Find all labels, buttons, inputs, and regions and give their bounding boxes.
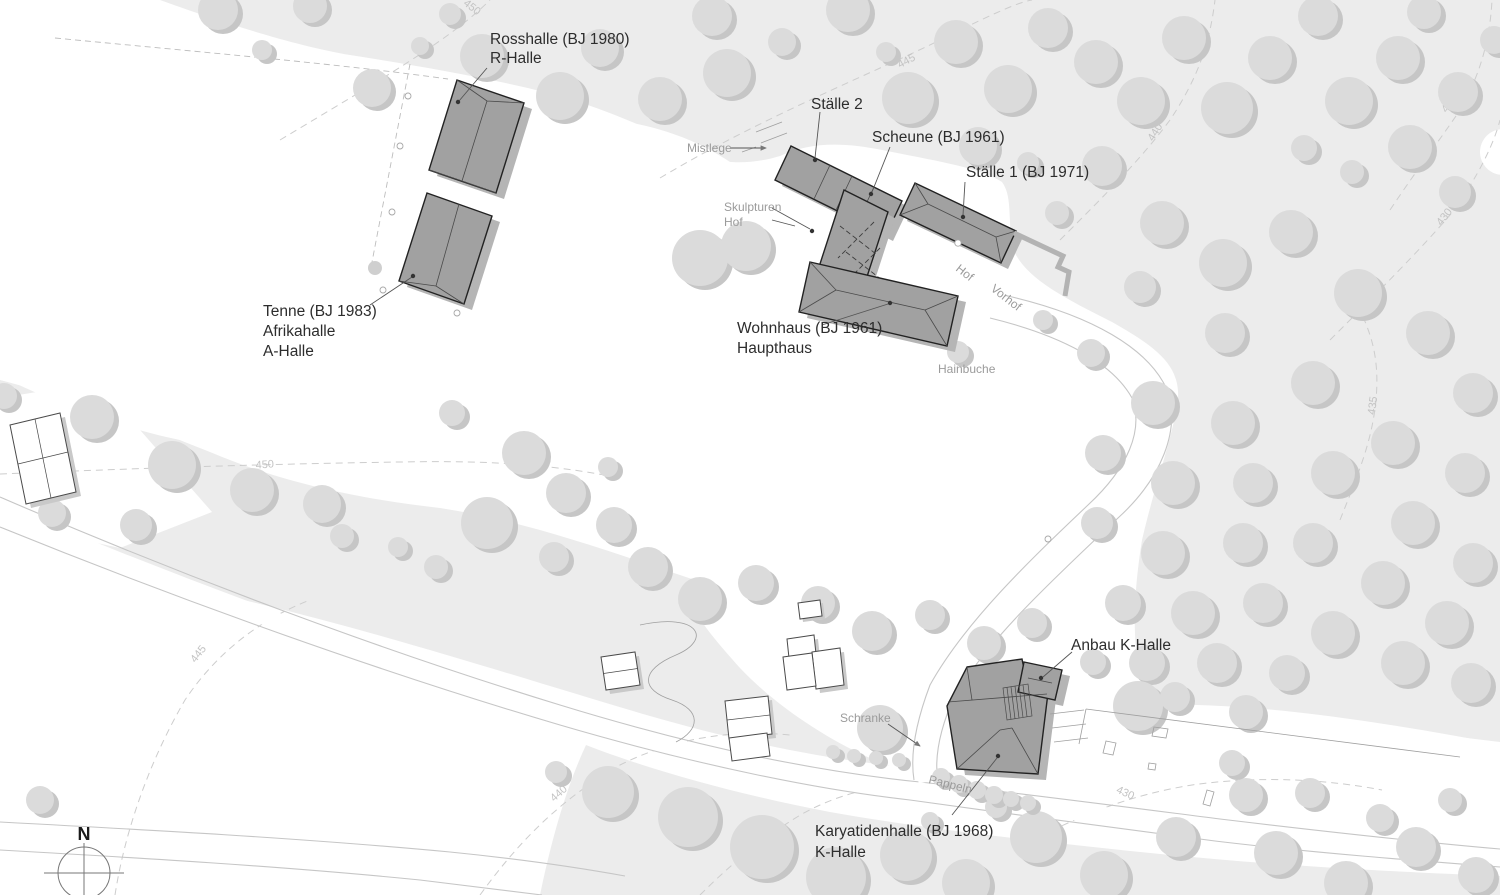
label-karyatidenhalle-line1: Karyatidenhalle (BJ 1968) xyxy=(815,823,993,840)
contour-label-435-right: 435 xyxy=(1366,396,1380,416)
label-staelle2: Ställe 2 xyxy=(811,96,863,113)
label-rosshalle-line1: Rosshalle (BJ 1980) xyxy=(490,31,630,48)
label-wohnhaus-line2: Haupthaus xyxy=(737,340,812,357)
label-karyatidenhalle-line2: K-Halle xyxy=(815,844,866,861)
small-tree-dot xyxy=(368,261,382,275)
site-plan-svg: 450 445 440 425 430 435 450 445 440 435 … xyxy=(0,0,1500,895)
label-mistlege: Mistlege xyxy=(687,141,732,155)
outbuilding-hut xyxy=(601,652,644,694)
outbuilding-tiny xyxy=(798,600,825,622)
label-scheune: Scheune (BJ 1961) xyxy=(872,129,1005,146)
site-plan: 450 445 440 425 430 435 450 445 440 435 … xyxy=(0,0,1500,895)
label-tenne-line2: Afrikahalle xyxy=(263,323,335,340)
label-schranke: Schranke xyxy=(840,711,891,725)
label-staelle1: Ställe 1 (BJ 1971) xyxy=(966,164,1089,181)
label-wohnhaus-line1: Wohnhaus (BJ 1961) xyxy=(737,320,882,337)
label-tenne-line3: A-Halle xyxy=(263,343,314,360)
outbuilding-annex xyxy=(725,696,776,761)
compass-north-label: N xyxy=(78,824,91,844)
label-skulpturen-line2: Hof xyxy=(724,215,743,229)
label-tenne-line1: Tenne (BJ 1983) xyxy=(263,303,377,320)
label-hainbuche: Hainbuche xyxy=(938,362,996,376)
label-rosshalle-line2: R-Halle xyxy=(490,50,542,67)
label-anbau-khalle: Anbau K-Halle xyxy=(1071,637,1171,654)
label-skulpturen-line1: Skulpturen xyxy=(724,200,781,214)
